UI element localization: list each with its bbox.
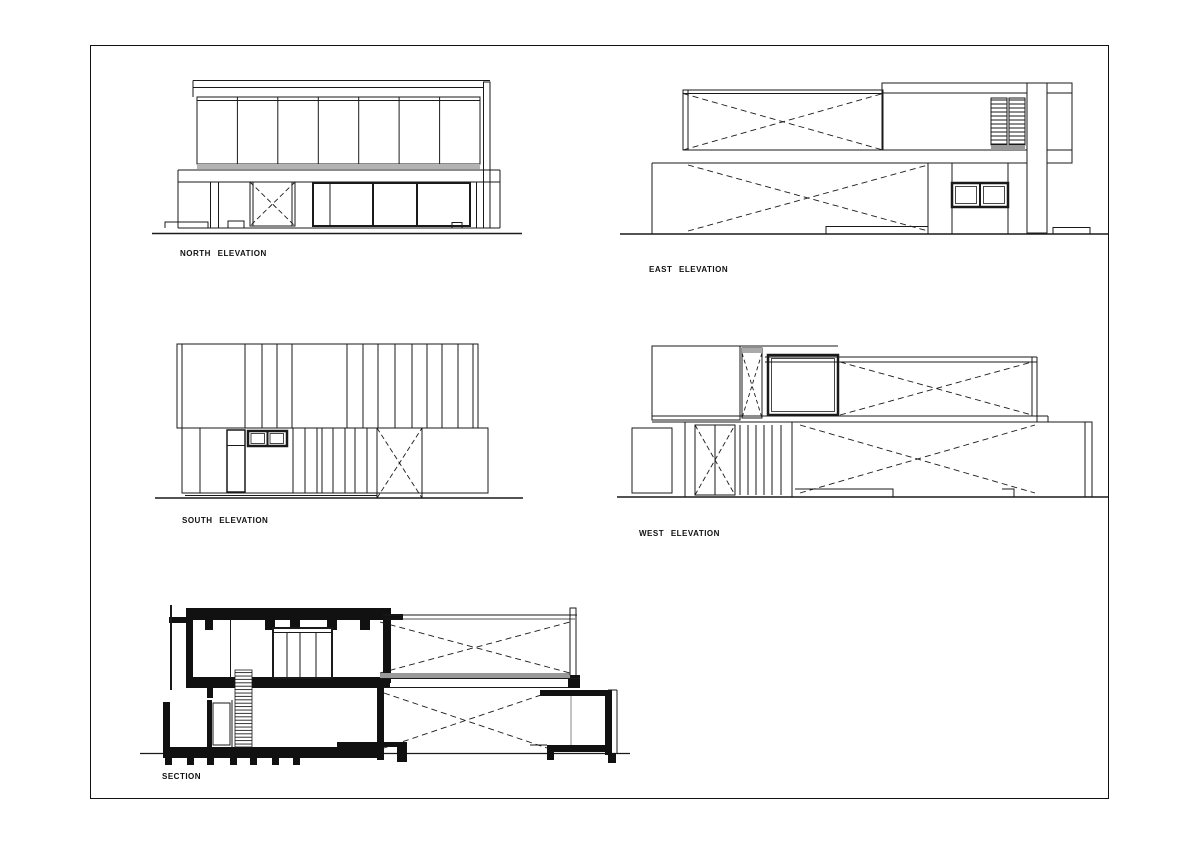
east-elevation-svg (610, 55, 1110, 240)
south-elevation-label: SOUTH ELEVATION (182, 516, 268, 525)
north-elevation-label: NORTH ELEVATION (180, 249, 267, 258)
east-elevation-drawing (610, 55, 1110, 240)
section-svg (135, 590, 635, 775)
section-drawing (135, 590, 635, 775)
west-elevation-svg (610, 332, 1110, 502)
north-elevation-svg (140, 60, 530, 255)
south-elevation-drawing (145, 335, 525, 505)
west-elevation-drawing (610, 332, 1110, 502)
west-elevation-label: WEST ELEVATION (639, 529, 720, 538)
north-elevation-drawing (140, 60, 530, 255)
section-label: SECTION (162, 772, 201, 781)
south-elevation-svg (145, 335, 525, 505)
east-elevation-label: EAST ELEVATION (649, 265, 728, 274)
